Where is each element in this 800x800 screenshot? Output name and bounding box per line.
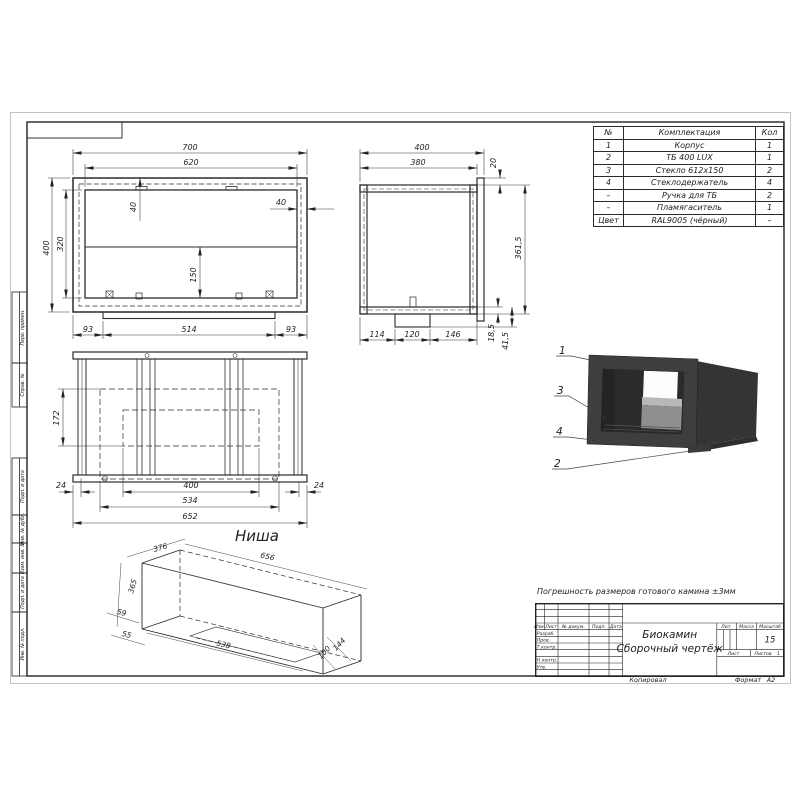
stamp-sprav-no: Справ. № [20,373,26,396]
dim-top-depth: 172 [52,410,61,425]
scale-value: 15 [765,636,776,646]
stamp-podp-data-1: Подп. и дата [20,470,26,503]
tolerance-note: Погрешность размеров готового камина ±3м… [537,587,736,596]
footer-labels: Копировал Формат А2 [629,676,775,684]
format-value: А2 [766,676,776,684]
lit-label: Лит. [720,624,732,630]
dim-front-inset-side: 40 [276,198,286,207]
sheet-label: Лист [727,651,740,657]
format-label: Формат [735,676,762,684]
niche-view: 376 656 365 59 55 538 100 144 [95,543,365,695]
dim-front-outer-width: 700 [182,143,197,152]
dim-side-b1: 114 [369,330,384,339]
stamp-inv-podl: Инв. № подл. [20,627,26,660]
dim-front-bottom-right: 93 [286,325,296,334]
dim-top-inner-width: 534 [182,496,197,505]
stamp-podp-data-2: Подп. и дата [20,576,26,609]
dim-top-opening: 400 [183,481,198,490]
dim-niche-height: 365 [126,578,139,594]
parts-cell: – [756,214,784,227]
col-list: Лист [544,624,557,630]
parts-cell: 1 [756,139,784,152]
title-doc-type: Сборочный чертёж [617,643,724,655]
dim-niche-144: 144 [331,636,348,653]
scale-label: Масштаб [759,624,781,630]
side-view-dimensions [360,149,530,345]
parts-cell: 1 [594,139,624,152]
left-stamp-labels: Перв. примен. Справ. № Подп. и дата Инв.… [20,309,26,660]
front-view-linework [73,178,307,319]
parts-cell: 3 [594,164,624,177]
parts-cell: Стекло 612х150 [624,164,756,177]
dim-top-outer-width: 652 [182,512,197,521]
top-view-linework [73,352,307,482]
dim-top-edge-right: 24 [314,481,324,490]
parts-header-qty: Кол [756,127,784,140]
dim-front-bottom-mid: 514 [181,325,196,334]
parts-row: 2 ТБ 400 LUX 1 [594,152,784,165]
mass-label: Масса [739,624,754,630]
callout-2: 2 [554,458,561,470]
col-doc: № докум. [561,624,585,630]
dim-side-body-height: 361,5 [514,237,523,260]
render-opening [643,370,678,399]
side-view-linework [360,178,484,327]
dim-front-inner-height: 320 [56,236,65,251]
dim-niche-length: 656 [260,551,276,563]
stamp-perv-primen: Перв. примен. [20,309,26,345]
parts-cell: 1 [756,152,784,165]
copied-label: Копировал [629,676,666,684]
parts-row: – Ручка для ТБ 2 [594,189,784,202]
parts-row: 3 Стекло 612х150 2 [594,164,784,177]
parts-cell: Пламягаситель [624,202,756,215]
drawing-sheet: { "sheet": { "tolerance_note": "Погрешно… [0,0,800,800]
parts-cell: 2 [756,189,784,202]
parts-table: № Комплектация Кол 1 Корпус 1 2 ТБ 400 L… [593,126,784,227]
parts-header-name: Комплектация [624,127,756,140]
dim-side-base: 41,5 [501,332,510,350]
parts-cell: 4 [756,177,784,190]
parts-header-num: № [594,127,624,140]
render-3d: 1 3 4 2 [545,330,785,488]
callout-3: 3 [557,385,564,397]
niche-linework [142,550,361,674]
dim-side-b2: 120 [404,330,419,339]
top-view: 172 24 400 534 652 24 [30,340,342,552]
dim-niche-depth: 376 [152,541,168,554]
parts-cell: 4 [594,177,624,190]
side-view: 400 380 20 361,5 18,5 41,5 114 120 146 [340,135,545,353]
parts-row: 4 Стеклодержатель 4 [594,177,784,190]
sheets-label: Листов [753,651,771,657]
row-utv: Утв. [537,664,547,670]
parts-cell: 2 [594,152,624,165]
title-product: Биокамин [642,629,697,641]
row-tkontr: Т.контр. [537,644,557,650]
col-sign: Подп. [592,624,606,630]
parts-cell: 1 [756,202,784,215]
row-razrab: Разраб. [537,631,555,637]
dim-front-glass-height: 150 [189,267,198,282]
dim-side-plate: 18,5 [487,324,496,342]
title-block: Изм. Лист № докум. Подп. Дата Разраб. Пр… [535,603,785,677]
callout-1: 1 [559,345,566,357]
stamp-vzam-inv: Взам. инв. № [20,542,26,575]
col-date: Дата [609,624,622,630]
parts-cell: Корпус [624,139,756,152]
dim-side-inner-depth: 380 [410,158,425,167]
dim-niche-538: 538 [216,639,232,651]
front-view: 700 620 400 320 40 40 150 93 514 93 [40,135,340,353]
dim-top-edge-left: 24 [56,481,66,490]
parts-row: – Пламягаситель 1 [594,202,784,215]
parts-cell: 2 [756,164,784,177]
parts-cell: – [594,202,624,215]
dim-front-bottom-left: 93 [83,325,93,334]
col-izm: Изм. [534,624,545,630]
parts-cell: Ручка для ТБ [624,189,756,202]
dim-front-inner-width: 620 [183,158,198,167]
dim-front-outer-height: 400 [42,240,51,255]
dim-side-flange: 20 [489,158,498,168]
parts-cell: RAL9005 (чёрный) [624,214,756,227]
stamp-inv-dubl: Инв. № дубл. [20,513,26,546]
parts-cell: Цвет [594,214,624,227]
callout-4: 4 [556,426,563,438]
render-body [587,355,758,453]
dim-side-outer-depth: 400 [414,143,429,152]
row-prov: Пров. [537,638,550,644]
render-glass [641,405,682,430]
parts-cell: Стеклодержатель [624,177,756,190]
row-nkontr: Н.контр. [537,658,558,664]
parts-cell: – [594,189,624,202]
parts-row: 1 Корпус 1 [594,139,784,152]
sheets-value: 1 [777,651,780,657]
dim-front-inset-top: 40 [129,202,138,212]
dim-side-b3: 146 [445,330,460,339]
parts-row: Цвет RAL9005 (чёрный) – [594,214,784,227]
parts-cell: ТБ 400 LUX [624,152,756,165]
parts-header-row: № Комплектация Кол [594,127,784,140]
